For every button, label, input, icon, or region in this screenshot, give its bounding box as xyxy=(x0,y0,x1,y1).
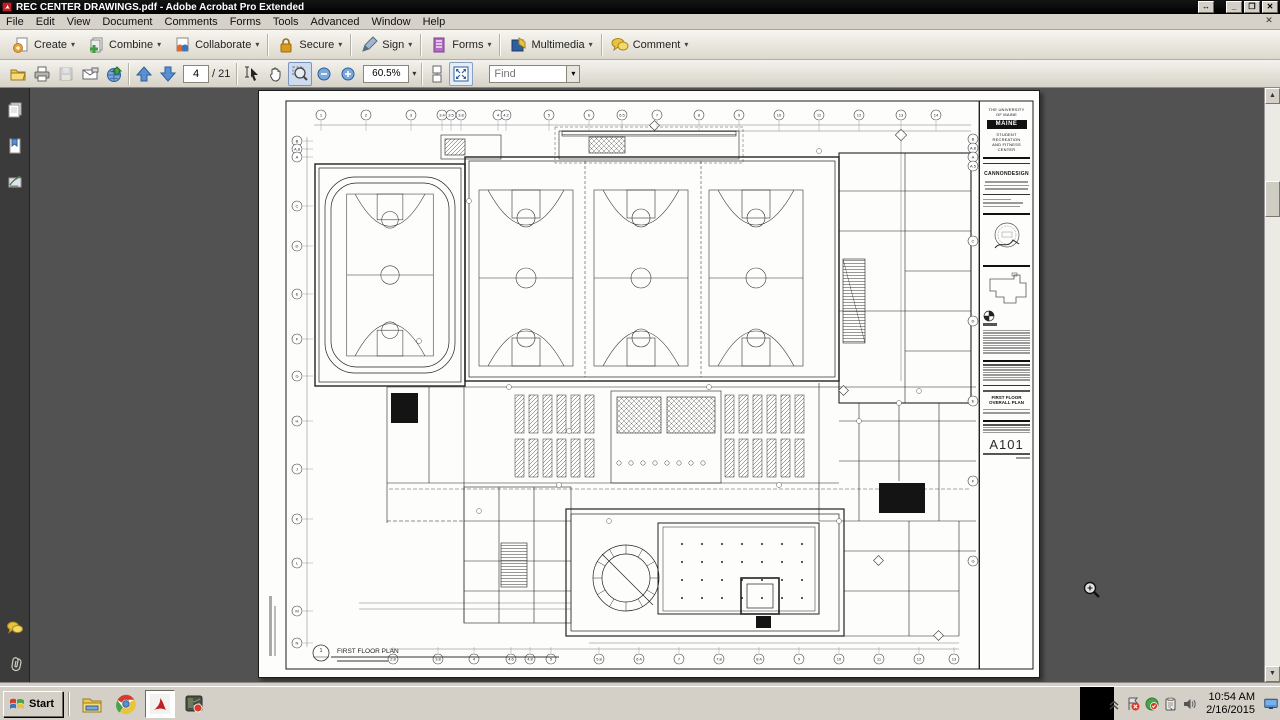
svg-text:A.8: A.8 xyxy=(970,146,977,151)
signatures-panel-icon[interactable] xyxy=(7,174,23,190)
pdf-page[interactable]: 1233.43.53.844.2566.57891011121314BA.8AC… xyxy=(258,90,1040,678)
multimedia-button[interactable]: Multimedia▾ xyxy=(503,33,598,57)
svg-text:6.4: 6.4 xyxy=(636,657,642,662)
svg-text:H: H xyxy=(296,419,299,424)
attachments-panel-icon[interactable] xyxy=(7,656,23,672)
zoom-in-button[interactable] xyxy=(336,62,360,86)
taskbar-clock[interactable]: 10:54 AM 2/16/2015 xyxy=(1206,691,1255,717)
window-title: REC CENTER DRAWINGS.pdf - Adobe Acrobat … xyxy=(16,2,304,13)
scrollbar-thumb[interactable] xyxy=(1265,181,1280,217)
find-input[interactable] xyxy=(489,65,567,83)
page-total: / 21 xyxy=(212,68,230,80)
sheet-title: FIRST FLOOR OVERALL PLAN xyxy=(989,395,1024,406)
chevron-down-icon: ▾ xyxy=(684,40,688,49)
svg-text:5.8: 5.8 xyxy=(596,657,602,662)
comment-icon xyxy=(611,36,629,54)
system-tray: 10:54 AM 2/16/2015 xyxy=(1107,687,1280,720)
svg-text:FIRST FLOOR PLAN: FIRST FLOOR PLAN xyxy=(337,648,399,655)
create-icon xyxy=(12,36,30,54)
menu-advanced[interactable]: Advanced xyxy=(305,16,366,28)
svg-text:E: E xyxy=(972,399,975,404)
print-button[interactable] xyxy=(30,62,54,86)
document-view-area[interactable]: 1233.43.53.844.2566.57891011121314BA.8AC… xyxy=(30,88,1264,682)
svg-text:4.2: 4.2 xyxy=(503,113,509,118)
architect-logo: CANNONDESIGN xyxy=(984,171,1029,177)
window-title-bar: REC CENTER DRAWINGS.pdf - Adobe Acrobat … xyxy=(0,0,1280,14)
facility-name: STUDENT RECREATION xyxy=(983,132,1030,142)
svg-text:A: A xyxy=(296,155,299,160)
svg-text:13: 13 xyxy=(952,657,957,662)
architect-stamp xyxy=(989,220,1025,256)
pdf-app-icon xyxy=(2,2,12,12)
globe-upload-icon xyxy=(105,65,123,83)
select-tool-button[interactable] xyxy=(240,62,264,86)
multimedia-icon xyxy=(509,36,527,54)
svg-text:E: E xyxy=(296,292,299,297)
svg-text:J: J xyxy=(296,467,298,472)
svg-text:G: G xyxy=(971,559,974,564)
svg-text:D: D xyxy=(972,319,975,324)
windows-taskbar: Start 10:54 AM 2/16/2015 xyxy=(0,686,1280,720)
tray-expand-icon[interactable] xyxy=(1107,697,1121,711)
scroll-up-button[interactable]: ▲ xyxy=(1265,88,1280,104)
chevron-down-icon: ▾ xyxy=(255,40,259,49)
toolbar-separator xyxy=(350,34,352,56)
zoom-in-icon xyxy=(339,65,357,83)
navigation-panel xyxy=(0,88,30,682)
menu-help[interactable]: Help xyxy=(417,16,452,28)
sign-button[interactable]: Sign▾ xyxy=(354,33,418,57)
svg-text:12: 12 xyxy=(857,113,862,118)
scrolling-pages-icon xyxy=(428,65,446,83)
menu-bar: File Edit View Document Comments Forms T… xyxy=(0,14,1280,30)
svg-text:6.5: 6.5 xyxy=(619,113,625,118)
forms-icon xyxy=(430,36,448,54)
navigation-toolbar: / 21 60.5% ▾ ▾ xyxy=(0,60,1280,88)
bookmarks-panel-icon[interactable] xyxy=(7,138,23,154)
sheet-number: A101 xyxy=(989,437,1023,452)
zoom-marquee-icon xyxy=(291,65,309,83)
svg-text:C: C xyxy=(296,204,299,209)
toolbar-separator xyxy=(128,63,130,85)
acrobat-taskbar-icon[interactable] xyxy=(145,690,175,718)
svg-text:3.8: 3.8 xyxy=(458,113,464,118)
task-toolbar: Create▾ Combine▾ Collaborate▾ Secure▾ Si… xyxy=(0,30,1280,60)
secure-button[interactable]: Secure▾ xyxy=(271,33,348,57)
svg-text:D: D xyxy=(296,244,299,249)
main-area: 1233.43.53.844.2566.57891011121314BA.8AC… xyxy=(0,88,1280,682)
menu-document[interactable]: Document xyxy=(96,16,158,28)
open-button[interactable] xyxy=(6,62,30,86)
svg-text:M: M xyxy=(295,609,298,614)
zoom-out-icon xyxy=(315,65,333,83)
menu-tools[interactable]: Tools xyxy=(267,16,305,28)
chevron-down-icon: ▾ xyxy=(408,40,412,49)
document-close-icon[interactable]: ✕ xyxy=(1262,15,1276,28)
explorer-taskbar-icon[interactable] xyxy=(77,690,107,718)
floor-plan-svg: 1233.43.53.844.2566.57891011121314BA.8AC… xyxy=(259,91,1041,679)
chrome-taskbar-icon[interactable] xyxy=(111,690,141,718)
chevron-down-icon: ▾ xyxy=(338,40,342,49)
combine-button[interactable]: Combine▾ xyxy=(81,33,167,57)
sheet-title-block: THE UNIVERSITY OF MAINE MAINE STUDENT RE… xyxy=(979,101,1033,669)
svg-text:12: 12 xyxy=(917,657,922,662)
minimize-button[interactable]: _ xyxy=(1226,1,1242,13)
taskbar-separator xyxy=(68,692,70,716)
menu-window[interactable]: Window xyxy=(365,16,416,28)
svg-text:A: A xyxy=(972,155,975,160)
start-button[interactable]: Start xyxy=(3,691,63,717)
hand-tool-button[interactable] xyxy=(264,62,288,86)
pages-panel-icon[interactable] xyxy=(7,102,23,118)
clipboard-tray-icon[interactable] xyxy=(1164,697,1178,711)
comment-button[interactable]: Comment▾ xyxy=(605,33,695,57)
collaborate-icon xyxy=(173,36,191,54)
north-arrow xyxy=(983,310,995,322)
toolbar-float-button[interactable]: ↔ xyxy=(1198,1,1214,13)
chevron-down-icon: ▾ xyxy=(71,40,75,49)
chevron-down-icon: ▾ xyxy=(589,40,593,49)
scrolling-pages-button[interactable] xyxy=(425,62,449,86)
start-label: Start xyxy=(29,698,54,710)
clock-time: 10:54 AM xyxy=(1206,691,1255,704)
menu-forms[interactable]: Forms xyxy=(224,16,267,28)
fit-page-icon xyxy=(452,65,470,83)
email-button[interactable] xyxy=(78,62,102,86)
plan-dark-room-3 xyxy=(756,616,771,628)
svg-text:A.5: A.5 xyxy=(970,164,977,169)
svg-text:B: B xyxy=(296,139,299,144)
close-button[interactable]: ✕ xyxy=(1262,1,1278,13)
zoom-cursor-icon xyxy=(1082,580,1102,600)
restore-button[interactable]: ❐ xyxy=(1244,1,1260,13)
menu-file[interactable]: File xyxy=(0,16,30,28)
svg-text:10: 10 xyxy=(777,113,782,118)
printer-icon xyxy=(33,65,51,83)
zoom-dropdown-icon[interactable]: ▾ xyxy=(409,69,419,78)
menu-comments[interactable]: Comments xyxy=(159,16,224,28)
show-desktop-icon[interactable] xyxy=(1264,697,1278,711)
svg-text:10: 10 xyxy=(837,657,842,662)
app-taskbar-icon[interactable] xyxy=(179,690,209,718)
zoom-marquee-tool-button[interactable] xyxy=(288,62,312,86)
maine-logo: MAINE xyxy=(987,120,1027,129)
svg-text:7.8: 7.8 xyxy=(716,657,722,662)
svg-text:A.8: A.8 xyxy=(294,147,301,152)
windows-logo-icon xyxy=(9,697,25,711)
hand-tool-icon xyxy=(267,65,285,83)
upload-button[interactable] xyxy=(102,62,126,86)
chevron-down-icon: ▾ xyxy=(487,40,491,49)
comments-panel-icon[interactable] xyxy=(7,620,23,636)
fit-page-button[interactable] xyxy=(449,62,473,86)
toolbar-separator xyxy=(236,63,238,85)
svg-text:1: 1 xyxy=(320,648,323,654)
svg-text:N: N xyxy=(296,641,299,646)
svg-text:14: 14 xyxy=(934,113,939,118)
next-page-button[interactable] xyxy=(156,62,180,86)
find-dropdown-icon[interactable]: ▾ xyxy=(567,65,580,83)
svg-text:3.5: 3.5 xyxy=(448,113,454,118)
collaborate-button[interactable]: Collaborate▾ xyxy=(167,33,265,57)
email-icon xyxy=(81,65,99,83)
zoom-level-value[interactable]: 60.5% xyxy=(363,65,409,83)
zoom-out-button[interactable] xyxy=(312,62,336,86)
key-plan xyxy=(986,271,1028,307)
save-icon xyxy=(57,65,75,83)
svg-text:13: 13 xyxy=(899,113,904,118)
volume-tray-icon[interactable] xyxy=(1183,697,1197,711)
scroll-down-button[interactable]: ▼ xyxy=(1265,666,1280,682)
updates-tray-icon[interactable] xyxy=(1145,697,1159,711)
toolbar-separator xyxy=(601,34,603,56)
svg-text:B: B xyxy=(972,137,975,142)
chevron-down-icon: ▾ xyxy=(157,40,161,49)
sign-icon xyxy=(360,36,378,54)
secure-icon xyxy=(277,36,295,54)
svg-text:8.4: 8.4 xyxy=(756,657,762,662)
clock-date: 2/16/2015 xyxy=(1206,704,1255,717)
svg-text:K: K xyxy=(296,517,299,522)
create-button[interactable]: Create▾ xyxy=(6,33,81,57)
toolbar-separator xyxy=(420,34,422,56)
vertical-scrollbar[interactable]: ▲ ▼ xyxy=(1264,88,1280,682)
menu-view[interactable]: View xyxy=(61,16,97,28)
toolbar-separator xyxy=(421,63,423,85)
open-folder-icon xyxy=(9,65,27,83)
arrow-up-icon xyxy=(135,65,153,83)
combine-icon xyxy=(87,36,105,54)
plan-dark-room-2 xyxy=(879,483,925,513)
svg-text:3.4: 3.4 xyxy=(439,113,445,118)
svg-text:C: C xyxy=(972,239,975,244)
svg-text:G: G xyxy=(295,374,298,379)
toolbar-separator xyxy=(499,34,501,56)
arrow-down-icon xyxy=(159,65,177,83)
previous-page-button[interactable] xyxy=(132,62,156,86)
forms-button[interactable]: Forms▾ xyxy=(424,33,497,57)
action-center-icon[interactable] xyxy=(1126,697,1140,711)
menu-edit[interactable]: Edit xyxy=(30,16,61,28)
toolbar-separator xyxy=(267,34,269,56)
plan-dark-room xyxy=(391,393,418,423)
page-number-input[interactable] xyxy=(183,65,209,83)
save-button[interactable] xyxy=(54,62,78,86)
select-tool-icon xyxy=(243,65,261,83)
